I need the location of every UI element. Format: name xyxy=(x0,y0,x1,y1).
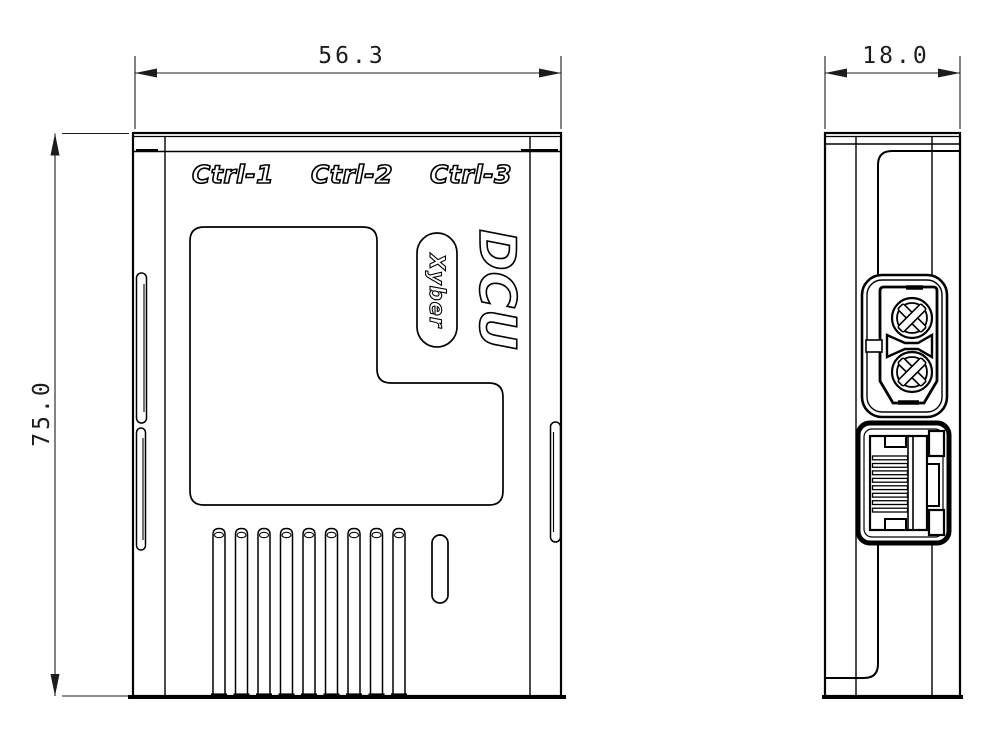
ethernet-lug-top xyxy=(929,431,944,456)
power-pin-top xyxy=(892,298,932,338)
power-pin-bottom xyxy=(892,352,932,392)
side-view xyxy=(822,133,963,697)
front-view xyxy=(128,133,566,697)
ethernet-lug-bottom xyxy=(929,510,944,535)
vent-slot xyxy=(256,529,272,695)
side-enclosure-outline xyxy=(822,133,963,697)
vent-slot xyxy=(234,529,250,695)
vent-slot xyxy=(211,529,227,695)
label-recess xyxy=(190,227,503,505)
status-slot xyxy=(432,535,448,603)
vent-slot xyxy=(324,529,340,695)
side-depth-dimension-text: 18.0 xyxy=(856,43,936,69)
front-width-dimension-text: 56.3 xyxy=(312,43,392,69)
vent-slot xyxy=(346,529,362,695)
brand-name-label: Xyber xyxy=(425,238,449,344)
ethernet-tab-bottom xyxy=(885,519,906,530)
right-clip xyxy=(551,422,561,542)
vent-slots xyxy=(211,529,407,695)
vent-slot xyxy=(369,529,385,695)
wire-notch xyxy=(866,340,882,352)
dim-front-height xyxy=(51,134,130,697)
left-clip-upper xyxy=(137,273,147,423)
vent-slot xyxy=(391,529,407,695)
vent-slot xyxy=(301,529,317,695)
port-label-ctrl-1: Ctrl-1 xyxy=(183,160,283,189)
ethernet-port xyxy=(858,423,949,543)
port-label-ctrl-2: Ctrl-2 xyxy=(302,160,402,189)
front-enclosure-outline xyxy=(128,133,566,697)
vent-slot xyxy=(279,529,295,695)
left-clip-lower xyxy=(137,428,146,550)
power-connector xyxy=(862,275,947,417)
product-name-label: DCU xyxy=(468,220,526,360)
cover-seam xyxy=(825,151,960,678)
engineering-drawing: 56.3 75.0 18.0 Ctrl-1 Ctrl-2 Ctrl-3 DCU … xyxy=(0,0,1000,737)
drawing-linework xyxy=(0,0,1000,737)
ethernet-latch xyxy=(927,464,939,506)
port-label-ctrl-3: Ctrl-3 xyxy=(421,160,521,189)
ethernet-tab-top xyxy=(885,436,906,447)
front-height-dimension-text: 75.0 xyxy=(29,373,55,453)
